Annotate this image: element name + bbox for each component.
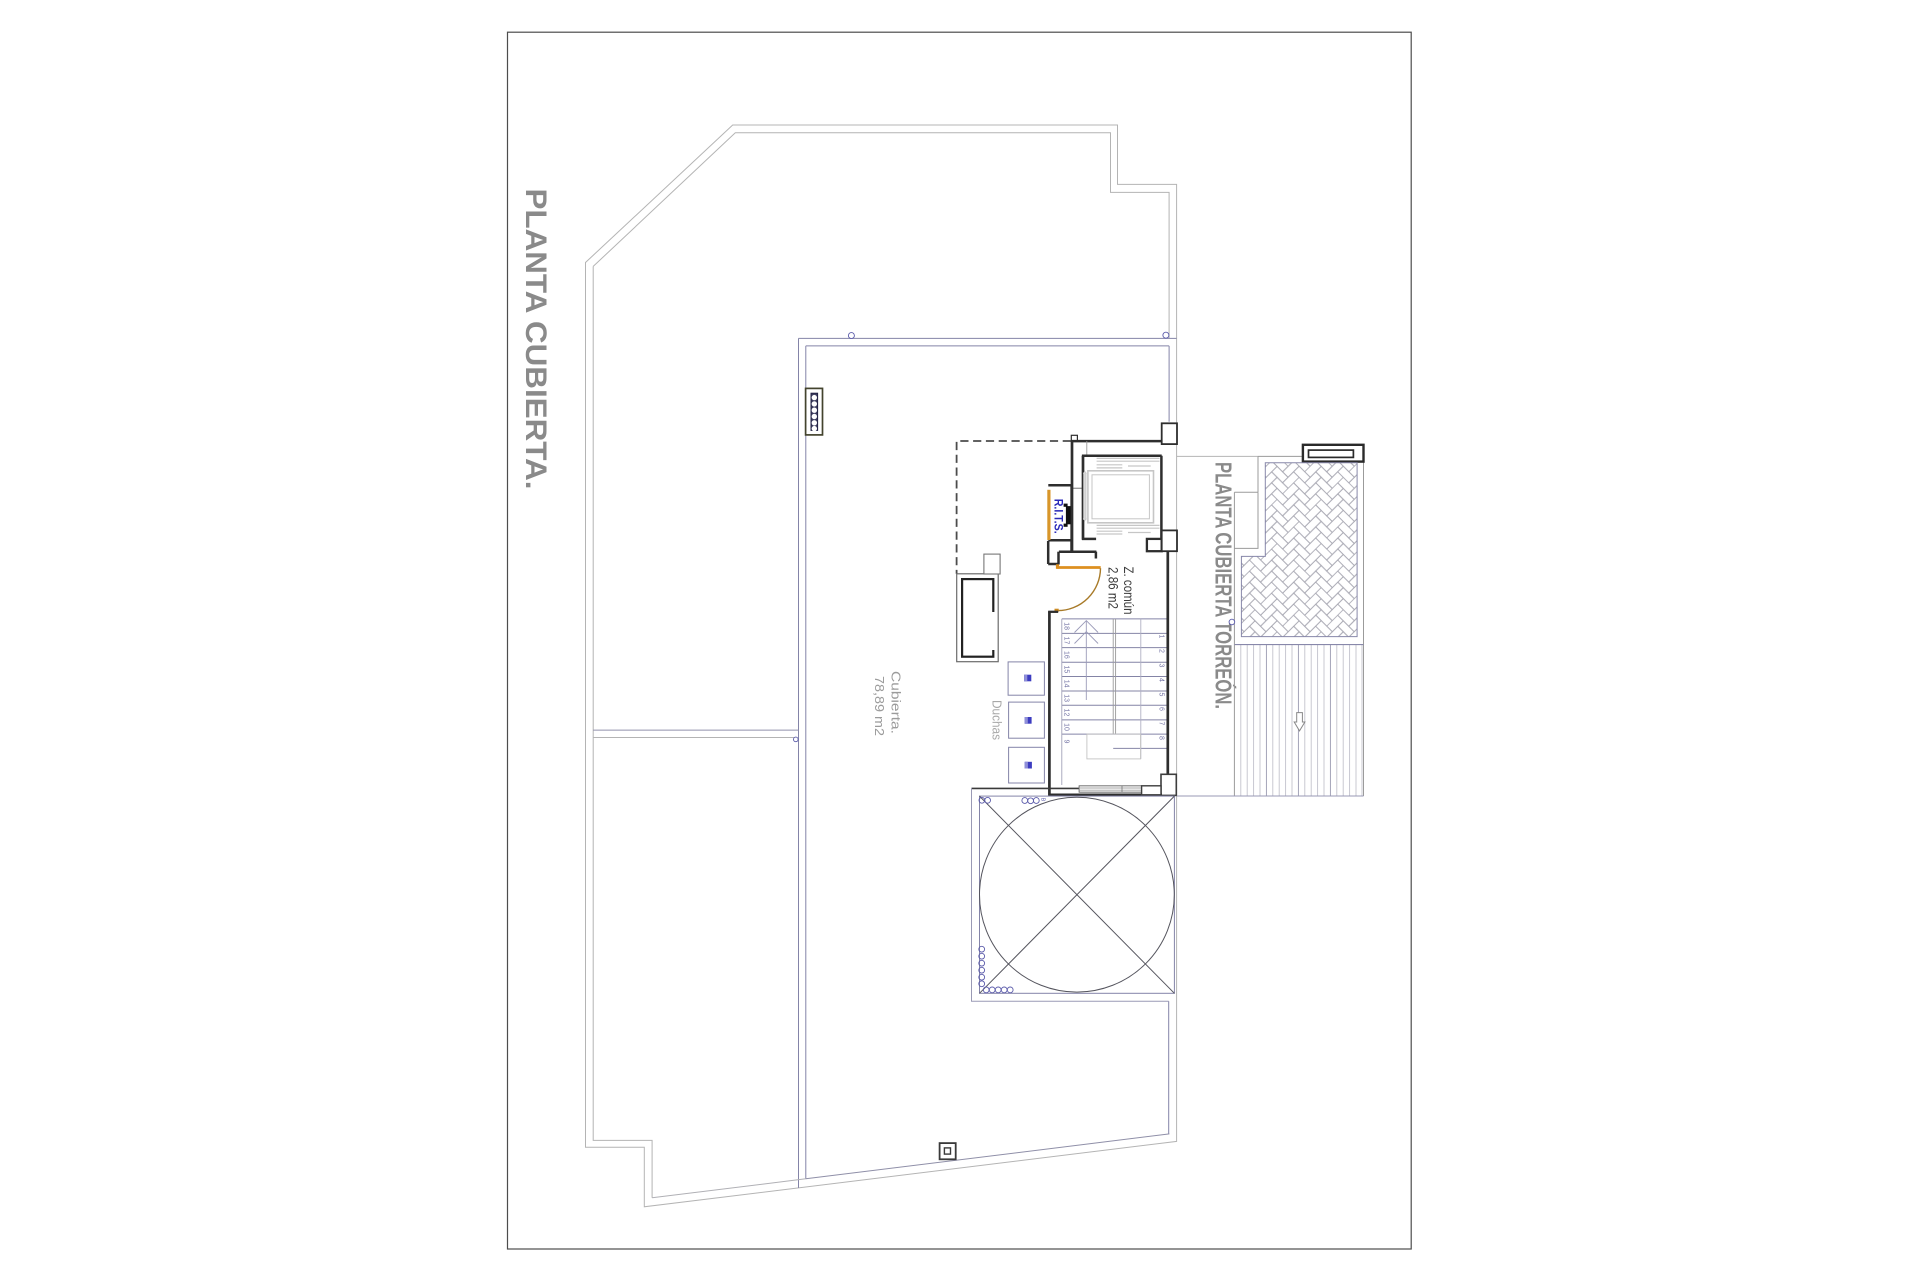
svg-text:1: 1 xyxy=(1158,635,1165,639)
svg-text:18: 18 xyxy=(1063,622,1070,630)
svg-text:3: 3 xyxy=(1158,664,1165,668)
svg-text:B: B xyxy=(1040,798,1046,802)
svg-text:17: 17 xyxy=(1063,637,1070,645)
svg-text:8: 8 xyxy=(1158,736,1165,740)
svg-text:16: 16 xyxy=(1063,651,1070,659)
svg-text:6: 6 xyxy=(1158,707,1165,711)
svg-text:PLANTA CUBIERTA.: PLANTA CUBIERTA. xyxy=(519,189,552,490)
svg-text:9: 9 xyxy=(1063,739,1070,743)
svg-text:4: 4 xyxy=(1158,678,1165,682)
svg-text:Duchas: Duchas xyxy=(989,700,1003,740)
svg-text:14: 14 xyxy=(1063,680,1070,688)
svg-text:Cubierta.: Cubierta. xyxy=(889,671,904,734)
svg-text:Z. común: Z. común xyxy=(1121,567,1136,615)
svg-text:PLANTA CUBIERTA TORREÓN.: PLANTA CUBIERTA TORREÓN. xyxy=(1211,462,1238,709)
svg-text:5: 5 xyxy=(1158,693,1165,697)
svg-text:78,89 m2: 78,89 m2 xyxy=(872,676,887,736)
svg-text:12: 12 xyxy=(1063,709,1070,717)
svg-text:2: 2 xyxy=(1158,649,1165,653)
svg-text:10: 10 xyxy=(1063,723,1070,731)
svg-text:2,86 m2: 2,86 m2 xyxy=(1106,567,1121,609)
svg-text:7: 7 xyxy=(1158,722,1165,726)
svg-text:R.I.T.S.: R.I.T.S. xyxy=(1051,499,1064,534)
svg-text:15: 15 xyxy=(1063,666,1070,674)
svg-text:13: 13 xyxy=(1063,694,1070,702)
